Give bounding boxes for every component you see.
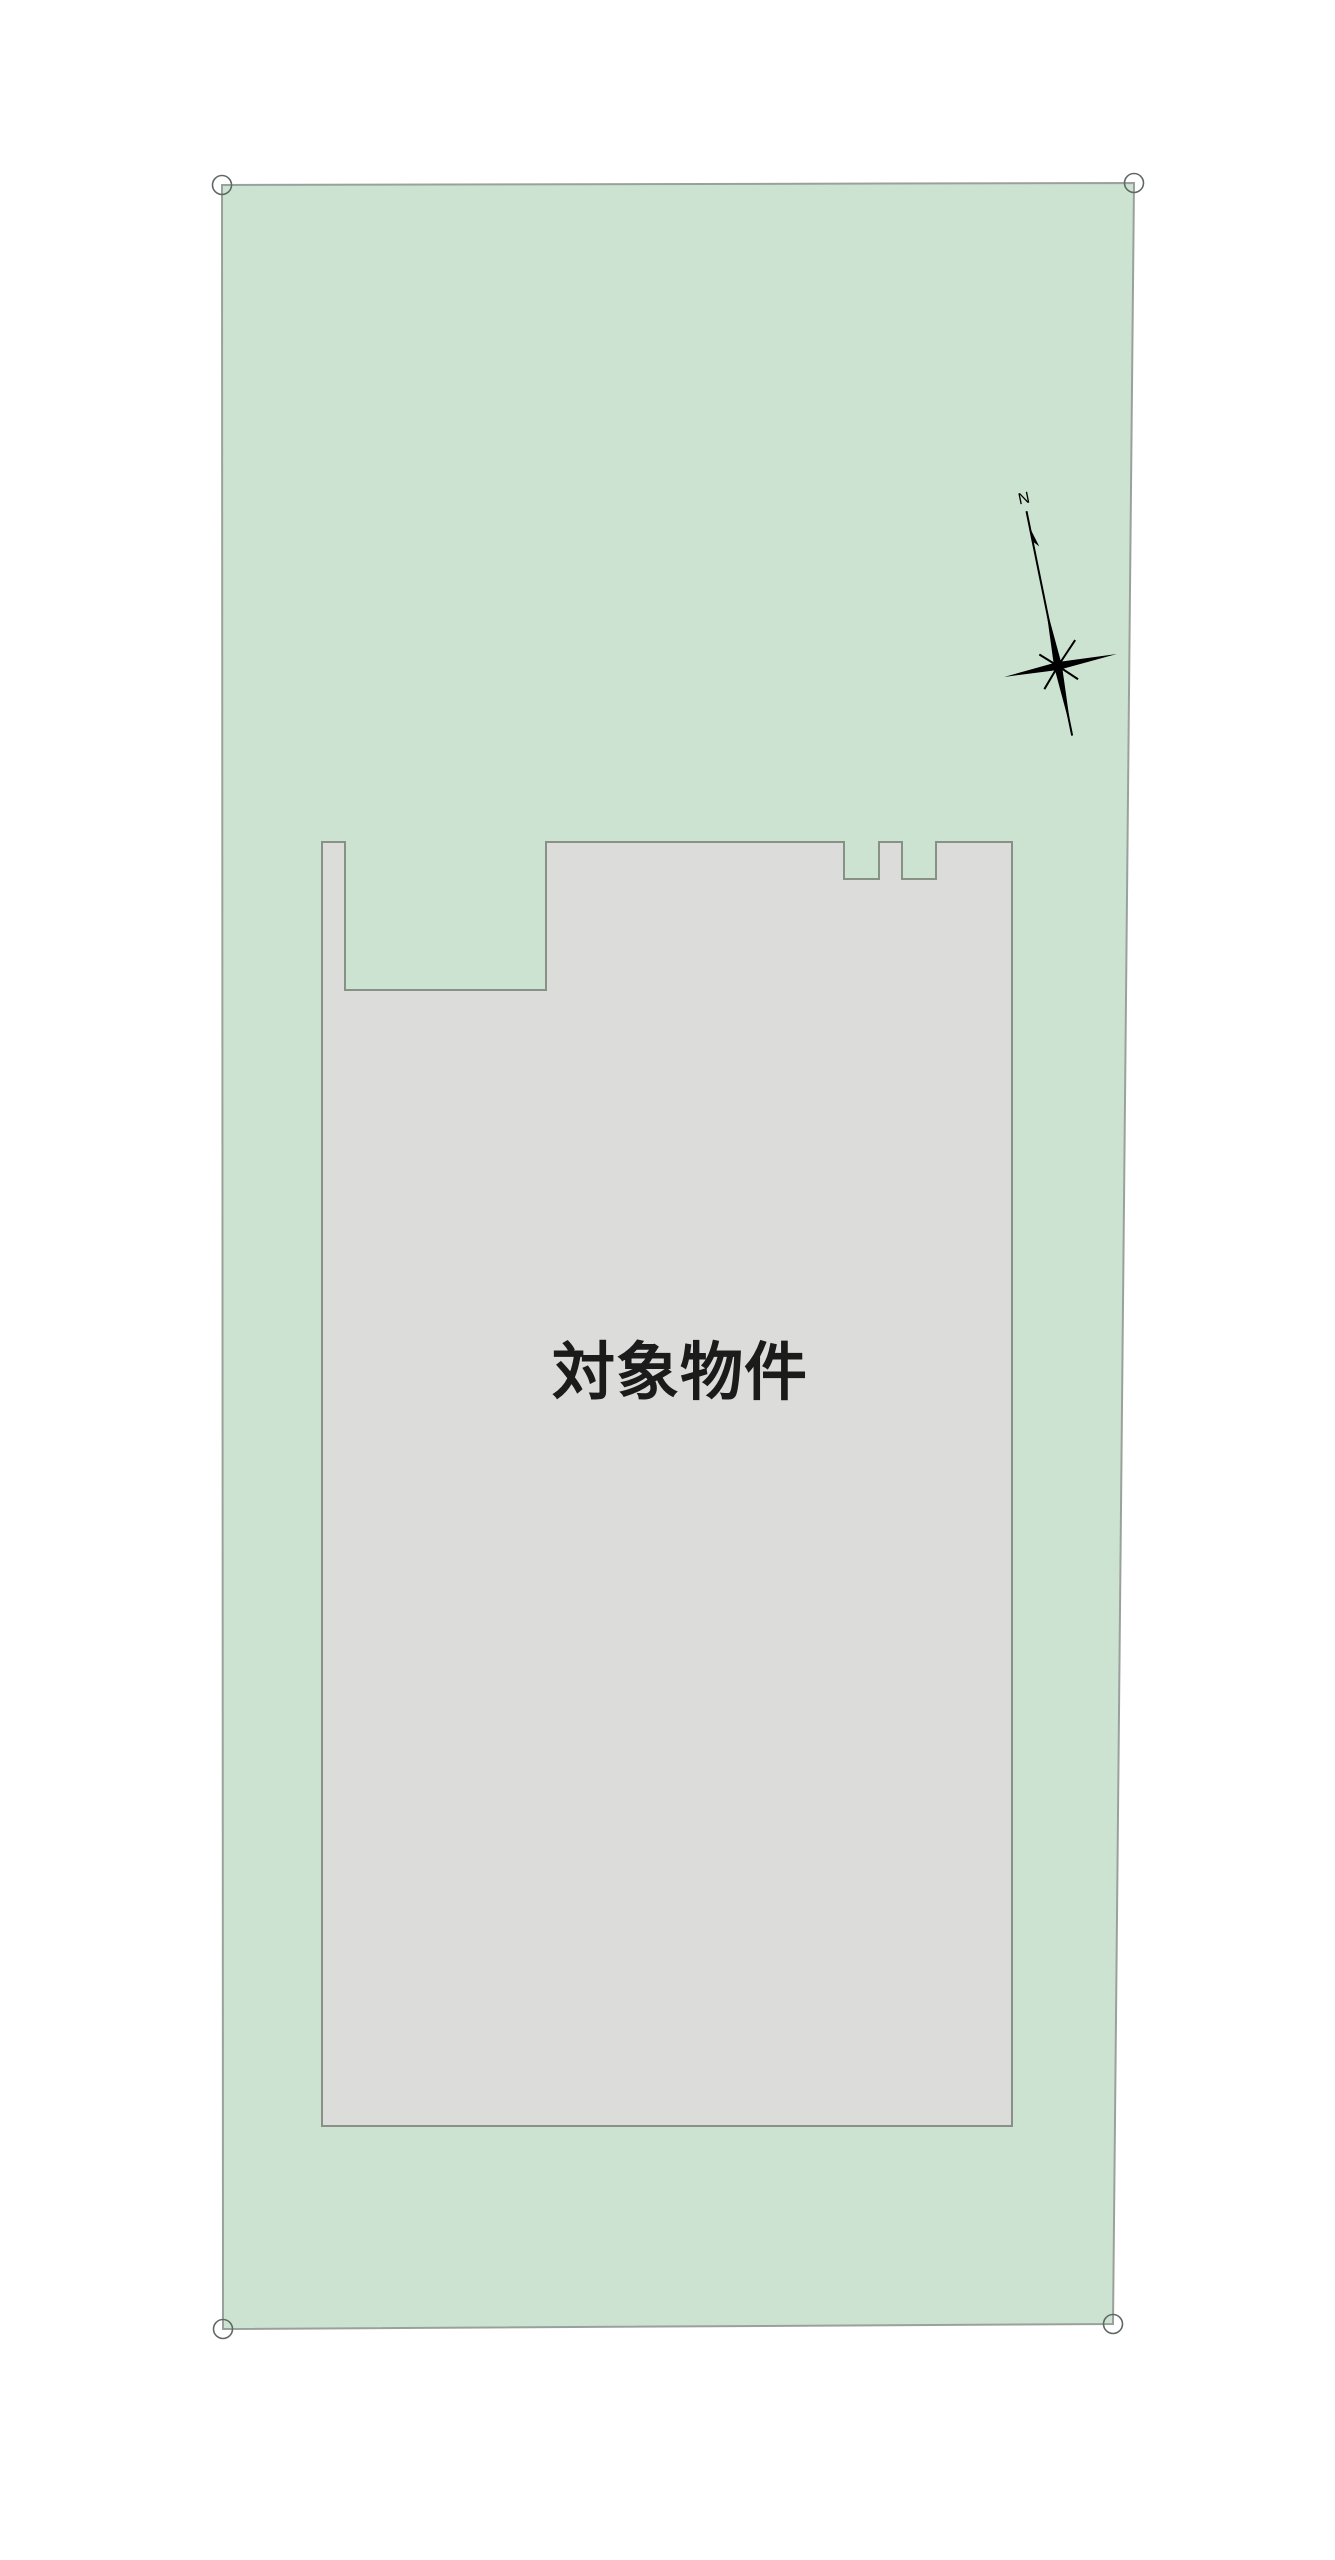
site-plan-canvas: N 対象物件 — [0, 0, 1335, 2560]
building-label: 対象物件 — [552, 1338, 808, 1408]
building-footprint — [322, 842, 1012, 2126]
site-plan: N 対象物件 — [0, 0, 1335, 2560]
page-body: { "page": { "background": "#ffffff" }, "… — [0, 0, 1335, 2560]
